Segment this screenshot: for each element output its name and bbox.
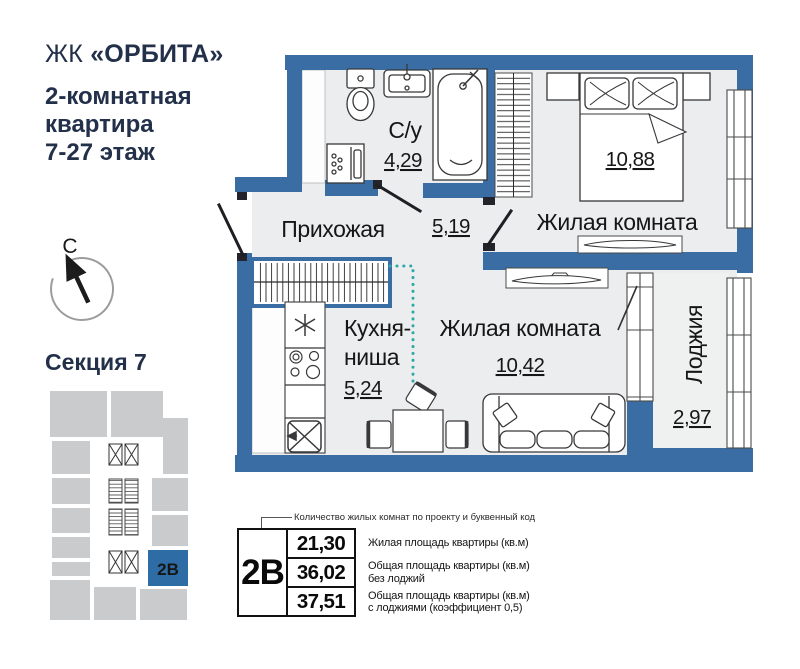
room-area: 2,97 (673, 406, 711, 429)
legend-desc-line: Жилая площадь квартиры (кв.м) (368, 537, 530, 550)
unit-block (52, 441, 90, 474)
bed-icon (580, 73, 686, 201)
room-name: Лоджия (681, 305, 707, 384)
legend-unit-code: 2В (237, 528, 288, 617)
bathtub-icon (433, 69, 487, 180)
wall (483, 252, 753, 270)
unit-block (163, 418, 188, 474)
complex-prefix: ЖК (45, 40, 83, 68)
room-area: 5,19 (432, 215, 470, 238)
room-name: ниша (344, 344, 400, 370)
unit-block (52, 508, 90, 533)
wardrobe-icon (252, 259, 390, 306)
unit-block (111, 391, 163, 437)
room-name: Жилая комната (537, 209, 699, 235)
unit-highlight-label: 2В (157, 560, 179, 579)
radiator-icon (506, 268, 608, 288)
legend-callout: Количество жилых комнат по проекту и бук… (294, 512, 535, 523)
loggia-glazing (727, 278, 751, 448)
room-name: Прихожая (281, 216, 384, 242)
room-area: 10,88 (606, 148, 655, 171)
room-area: 5,24 (344, 377, 382, 400)
room-area: 10,42 (496, 354, 545, 377)
legend-value-total: 36,02 (286, 557, 356, 588)
floor-plan: С/у 4,29 Прихожая 5,19 Жилая комната 10,… (219, 55, 753, 472)
wall (627, 400, 653, 455)
elevator-icon (109, 444, 138, 465)
chair-icon (446, 421, 468, 448)
legend-desc: Общая площадь квартиры (кв.м) без лоджий (368, 558, 530, 588)
toilet-icon (347, 69, 374, 121)
balcony-door-block (627, 273, 653, 401)
legend: Количество жилых комнат по проекту и бук… (237, 510, 757, 630)
washing-machine-icon (327, 144, 364, 183)
room-name: Жилая комната (440, 315, 602, 341)
wall (237, 253, 252, 471)
nightstand-icon (547, 73, 579, 100)
entrance-door-swing (219, 205, 243, 255)
room-hall-label: Прихожая 5,19 (281, 215, 470, 242)
unit-block (50, 580, 90, 620)
mini-plan: 2В (50, 391, 188, 620)
unit-block (140, 589, 187, 620)
wardrobe-icon (495, 73, 532, 197)
unit-highlight-2v: 2В (148, 550, 188, 586)
radiator-icon (578, 236, 682, 253)
legend-descriptions: Жилая площадь квартиры (кв.м) Общая площ… (368, 528, 530, 617)
nightstand-icon (683, 73, 710, 100)
unit-block (152, 478, 188, 511)
apartment-subtitle: 2-комнатная квартира 7-27 этаж (45, 83, 223, 167)
duct (302, 70, 325, 183)
unit-block (152, 515, 188, 546)
wall (235, 177, 302, 192)
legend-values: 21,30 36,02 37,51 (286, 528, 356, 617)
unit-block (50, 391, 107, 437)
legend-value-total-loggia: 37,51 (286, 586, 356, 617)
complex-title: ЖК «ОРБИТА» (45, 40, 223, 69)
section-title: Секция 7 (45, 349, 147, 376)
complex-name: «ОРБИТА» (90, 40, 223, 68)
kitchen-sink-icon (288, 421, 321, 452)
bedroom-window (727, 90, 752, 228)
room-area: 4,29 (384, 149, 422, 172)
wall (287, 55, 302, 183)
elevator-icon (109, 551, 138, 573)
legend-desc-line: Общая площадь квартиры (кв.м) (368, 590, 530, 603)
legend-desc: Общая площадь квартиры (кв.м) с лоджиями… (368, 587, 530, 617)
table-icon (393, 410, 443, 452)
wall (640, 448, 753, 472)
compass: С (51, 235, 113, 320)
unit-block (52, 478, 90, 504)
legend-value-living: 21,30 (286, 528, 356, 559)
chair-icon (367, 421, 391, 448)
legend-desc-line: Общая площадь квартиры (кв.м) (368, 560, 530, 573)
subtitle-line: квартира (45, 111, 223, 139)
duct (252, 302, 285, 453)
legend-desc-line: без лоджий (368, 573, 530, 586)
header: ЖК «ОРБИТА» 2-комнатная квартира 7-27 эт… (45, 40, 223, 167)
sofa-icon (483, 394, 625, 452)
unit-block (94, 587, 136, 620)
stairs-icon (109, 479, 138, 535)
unit-block (52, 537, 90, 558)
room-name: С/у (388, 117, 422, 143)
unit-block (52, 562, 90, 576)
room-name: Кухня- (344, 315, 411, 341)
compass-north-label: С (62, 235, 77, 258)
legend-desc-line: с лоджиями (коэффициент 0,5) (368, 602, 530, 615)
wall (285, 55, 753, 70)
subtitle-line: 7-27 этаж (45, 139, 223, 167)
subtitle-line: 2-комнатная (45, 83, 223, 111)
legend-desc: Жилая площадь квартиры (кв.м) (368, 528, 530, 558)
